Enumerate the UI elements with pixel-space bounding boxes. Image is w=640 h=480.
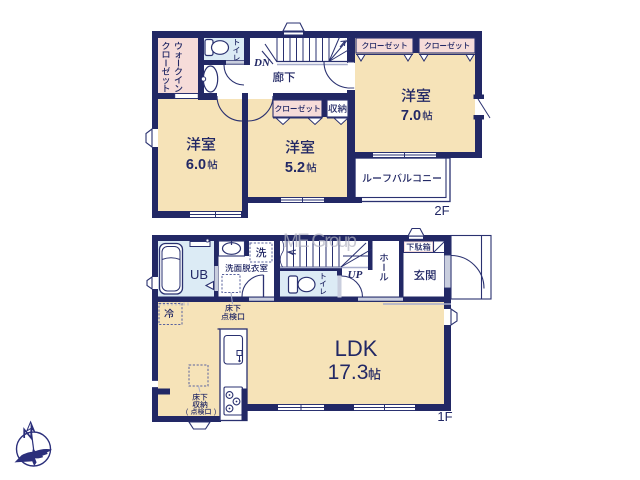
svg-text:ME Group: ME Group (283, 231, 357, 252)
svg-text:2F: 2F (434, 203, 449, 218)
svg-text:LDK: LDK (335, 336, 378, 361)
svg-text:UP: UP (348, 269, 363, 281)
svg-text:17.3: 17.3 (328, 361, 369, 384)
svg-text:7.0: 7.0 (401, 108, 421, 124)
svg-text:5.2: 5.2 (285, 160, 305, 176)
svg-text:UB: UB (190, 267, 208, 282)
svg-text:1F: 1F (437, 409, 452, 424)
svg-text:DN: DN (253, 57, 271, 69)
svg-text:6.0: 6.0 (186, 157, 206, 173)
svg-text:): ) (214, 409, 216, 416)
